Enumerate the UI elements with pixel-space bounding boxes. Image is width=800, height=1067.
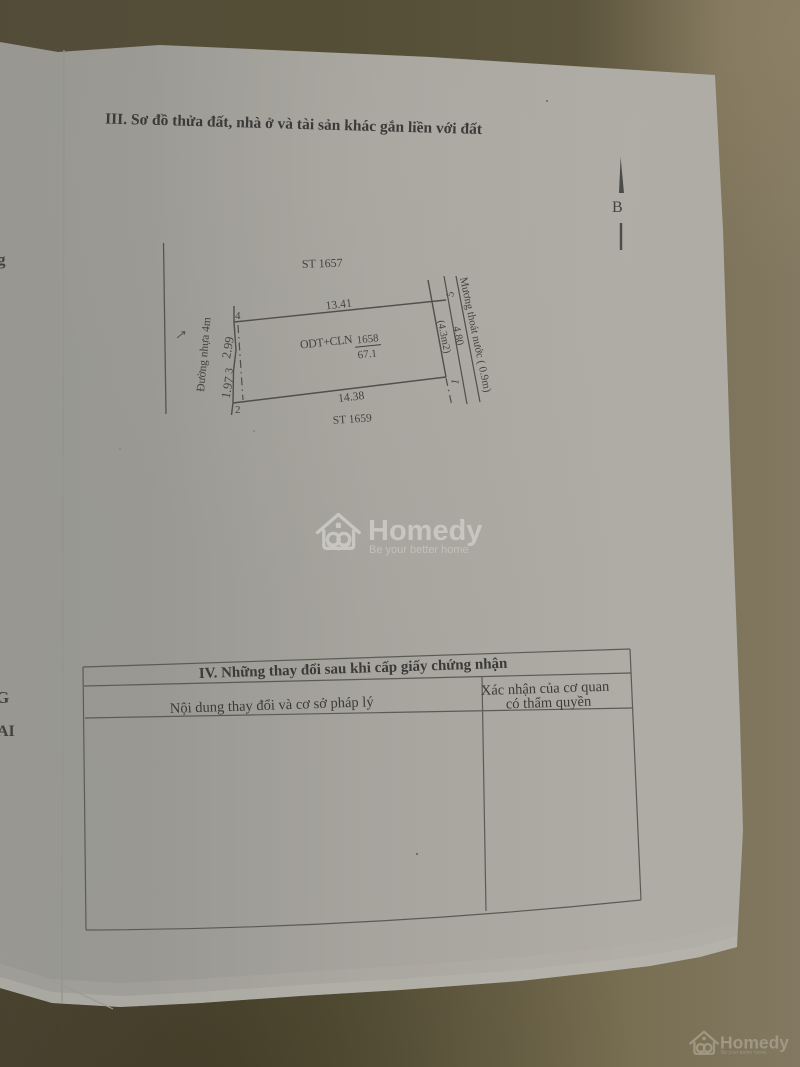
svg-text:2: 2 xyxy=(235,404,241,416)
svg-text:AI: AI xyxy=(0,723,15,740)
svg-text:Be your better home: Be your better home xyxy=(369,544,469,556)
svg-text:67.1: 67.1 xyxy=(357,348,377,362)
svg-text:Homedy: Homedy xyxy=(368,515,482,547)
svg-text:ST 1657: ST 1657 xyxy=(302,256,343,271)
svg-text:4: 4 xyxy=(235,310,241,322)
svg-text:G: G xyxy=(0,688,9,707)
svg-text:g: g xyxy=(0,250,6,269)
svg-text:1658: 1658 xyxy=(356,332,380,346)
svg-text:B: B xyxy=(612,199,623,216)
svg-text:Be your better home: Be your better home xyxy=(721,1050,767,1056)
svg-text:có thẩm quyền: có thẩm quyền xyxy=(506,694,593,713)
